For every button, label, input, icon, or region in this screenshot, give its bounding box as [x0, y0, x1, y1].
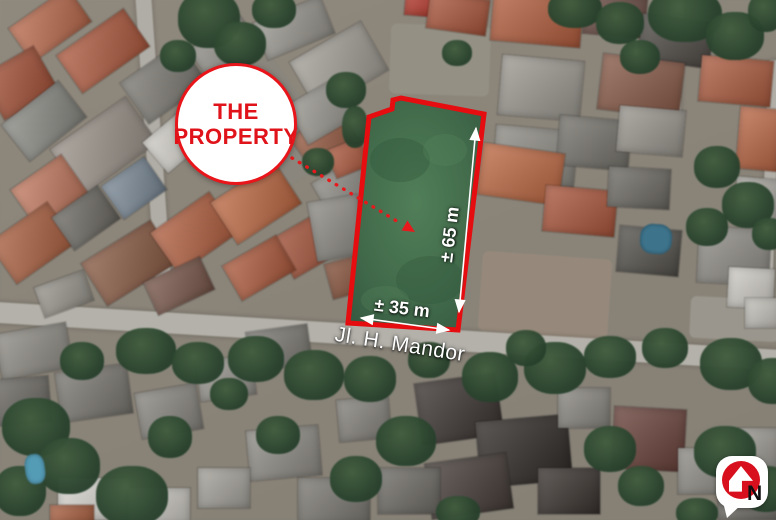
tree-canopy	[330, 456, 382, 502]
tree-canopy	[642, 328, 688, 368]
tree-canopy	[694, 146, 740, 188]
tree-canopy	[620, 40, 660, 74]
tree-canopy	[344, 356, 396, 402]
roof-patch	[542, 185, 618, 237]
tree-canopy	[326, 72, 366, 108]
roof-patch	[616, 105, 686, 157]
tree-canopy	[686, 208, 728, 246]
tree-canopy	[284, 350, 344, 400]
tree-canopy	[256, 416, 300, 454]
property-aerial-image: ± 65 m ± 35 m Jl. H. Mandor THE PROPERTY…	[0, 0, 776, 520]
tree-canopy	[228, 336, 284, 382]
tree-canopy	[752, 218, 776, 250]
roof-patch	[198, 468, 250, 508]
tree-canopy	[584, 426, 636, 472]
satellite-map	[0, 0, 776, 520]
roof-patch	[378, 468, 440, 514]
swimming-pool	[639, 223, 673, 255]
tree-canopy	[96, 466, 168, 520]
tree-canopy	[506, 330, 546, 366]
tree-canopy	[160, 40, 196, 72]
roof-patch	[498, 55, 585, 122]
roof-patch	[607, 166, 671, 209]
tree-canopy	[436, 496, 480, 520]
tree-canopy	[584, 336, 636, 378]
property-callout-badge: THE PROPERTY	[175, 63, 297, 185]
tree-canopy	[38, 438, 100, 494]
north-letter: N	[747, 482, 762, 506]
tree-canopy	[214, 22, 266, 66]
roof-patch	[538, 468, 600, 514]
badge-line2: PROPERTY	[173, 124, 298, 149]
tree-canopy	[618, 466, 664, 506]
tree-canopy	[60, 342, 104, 380]
roof-patch	[50, 505, 94, 520]
roof-patch	[324, 253, 378, 300]
roof-patch	[745, 298, 776, 328]
tree-canopy	[172, 342, 224, 384]
ground-patch	[477, 251, 612, 340]
roof-patch	[558, 388, 610, 428]
tree-canopy	[342, 106, 368, 148]
tree-canopy	[376, 416, 436, 466]
north-indicator: N	[716, 456, 770, 520]
roof-patch	[698, 55, 774, 107]
tree-canopy	[210, 378, 248, 410]
tree-canopy	[748, 358, 776, 404]
tree-canopy	[596, 2, 644, 44]
badge-line1: THE	[213, 99, 259, 124]
roof-patch	[307, 194, 367, 262]
roof-patch	[735, 106, 776, 171]
tree-canopy	[148, 416, 192, 458]
tree-canopy	[442, 40, 472, 66]
tree-canopy	[676, 498, 718, 520]
tree-canopy	[302, 148, 334, 176]
tree-canopy	[116, 328, 176, 374]
